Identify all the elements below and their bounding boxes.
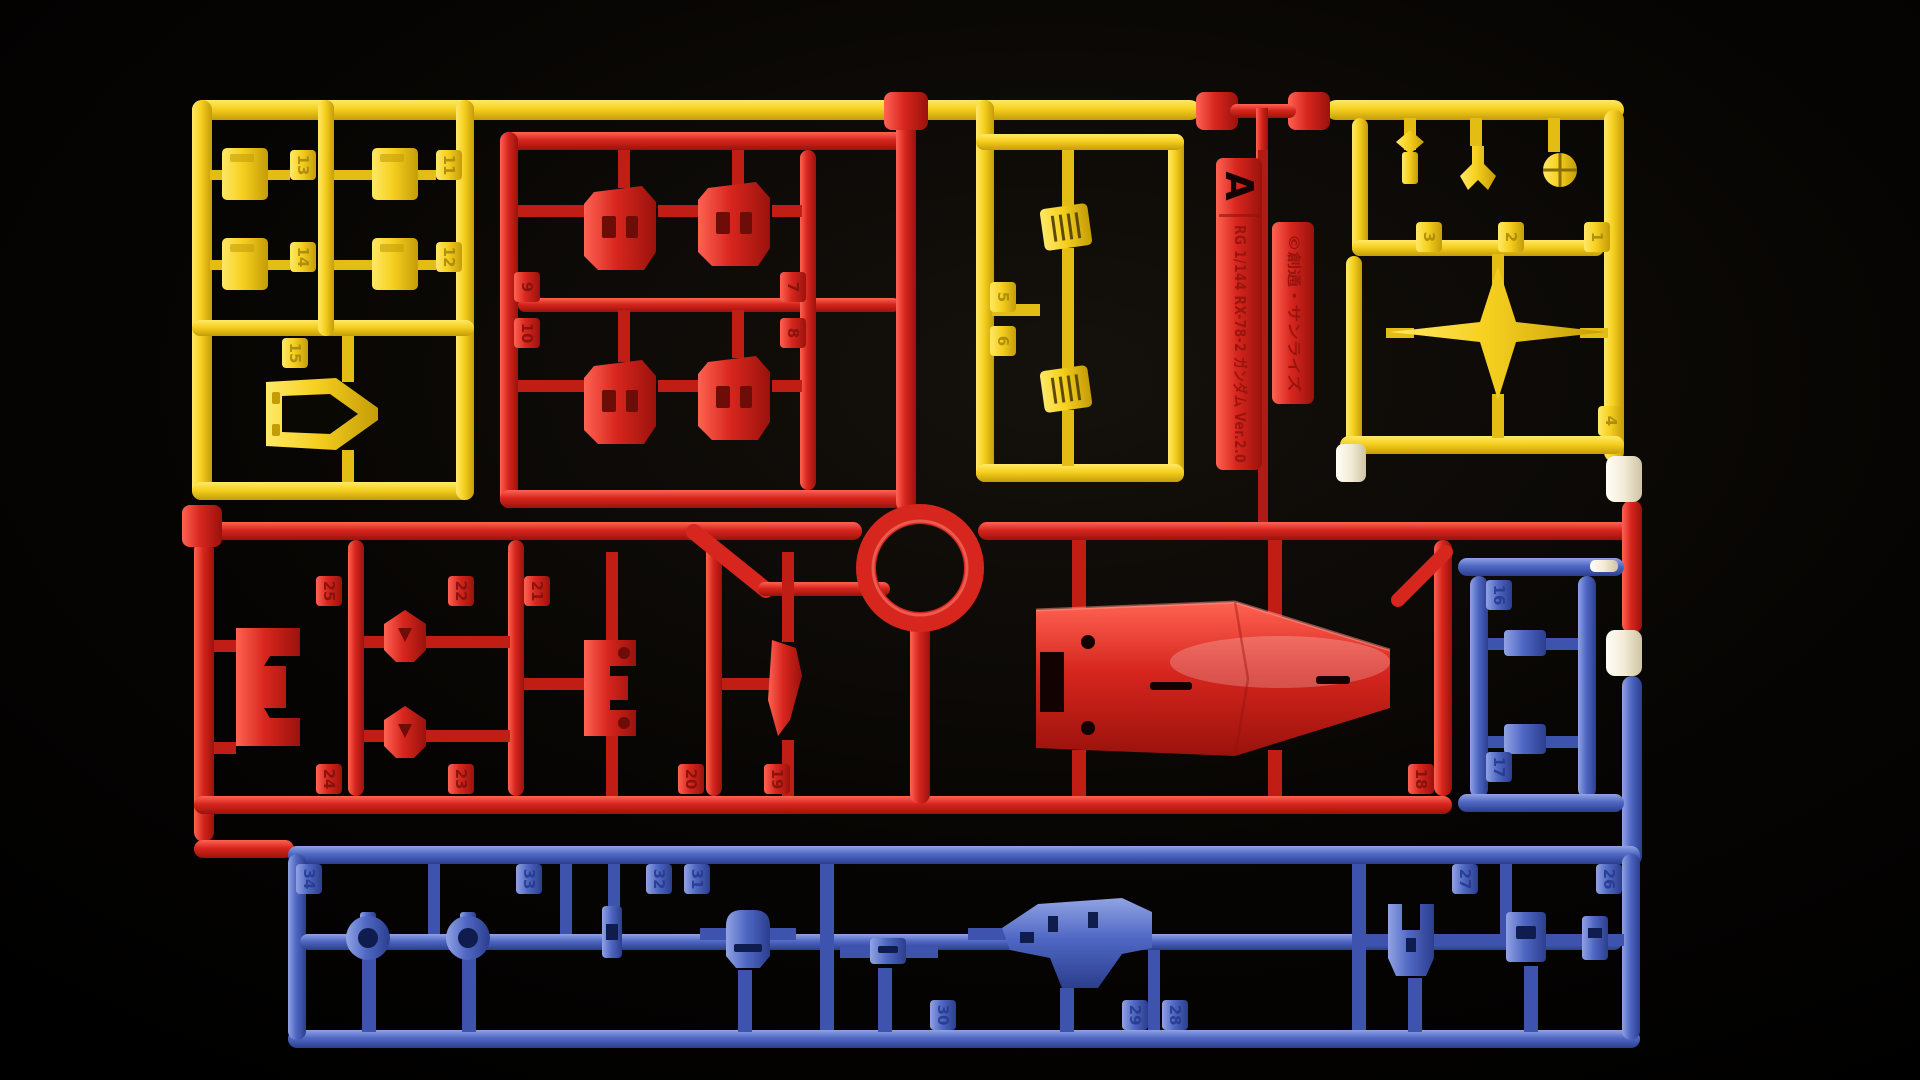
part-blue-box	[1506, 912, 1546, 962]
svg-text:5: 5	[994, 292, 1012, 302]
connector-cream-top-right	[1606, 456, 1642, 502]
part-number-tab: 34	[296, 864, 322, 894]
svg-text:1: 1	[1588, 232, 1606, 242]
svg-text:15: 15	[286, 343, 304, 364]
part-blue-bracket-small	[1504, 724, 1546, 754]
svg-text:12: 12	[440, 247, 458, 268]
part-number-tab: 17	[1486, 752, 1512, 782]
part-number-tab: 20	[678, 764, 704, 794]
svg-text:17: 17	[1490, 757, 1508, 778]
part-blue-small-box	[1582, 916, 1608, 960]
part-yellow-square	[222, 238, 268, 290]
part-number-tab: 3	[1416, 222, 1442, 252]
svg-text:8: 8	[784, 328, 802, 338]
part-number-tab: 2	[1498, 222, 1524, 252]
svg-text:9: 9	[518, 282, 536, 292]
part-yellow-camera	[1543, 153, 1577, 187]
part-number-tab: 13	[290, 150, 316, 180]
svg-text:20: 20	[682, 769, 700, 790]
part-number-tab: 10	[514, 318, 540, 348]
svg-text:16: 16	[1490, 585, 1508, 606]
svg-text:24: 24	[320, 769, 338, 790]
runner-letter: A	[1217, 171, 1261, 201]
part-yellow-square	[372, 148, 418, 200]
svg-text:22: 22	[452, 581, 470, 602]
part-red-foot	[584, 360, 656, 444]
part-number-tab: 18	[1408, 764, 1434, 794]
part-blue-thin	[602, 906, 622, 958]
connector-cream-mid-right	[1606, 630, 1642, 676]
copyright-text: ©創通・サンライズ	[1285, 234, 1302, 392]
part-number-tab: 6	[990, 326, 1016, 356]
part-yellow-square	[372, 238, 418, 290]
part-number-tab: 15	[282, 338, 308, 368]
svg-text:28: 28	[1166, 1005, 1184, 1026]
part-blue-chest-vent	[870, 938, 906, 964]
part-red-foot	[698, 356, 770, 440]
svg-text:31: 31	[688, 869, 706, 890]
part-blue-bracket-small	[1504, 630, 1546, 656]
part-red-foot	[698, 182, 770, 266]
svg-text:7: 7	[784, 282, 802, 292]
part-number-tab: 28	[1162, 1000, 1188, 1030]
part-number-tab: 14	[290, 242, 316, 272]
svg-text:26: 26	[1600, 869, 1618, 890]
svg-text:6: 6	[994, 336, 1012, 346]
part-number-tab: 22	[448, 576, 474, 606]
photo-gunpla-runner: A RG 1/144 RX-78-2 ガンダム Ver.2.0 ©創通・サンライ…	[0, 0, 1920, 1080]
part-number-tab: 24	[316, 764, 342, 794]
part-number-tab: 11	[436, 150, 462, 180]
connector-red-left	[182, 505, 222, 547]
svg-text:18: 18	[1412, 769, 1430, 790]
part-number-tab: 32	[646, 864, 672, 894]
svg-text:27: 27	[1456, 869, 1474, 890]
part-number-tab: 8	[780, 318, 806, 348]
svg-text:21: 21	[528, 581, 546, 602]
part-yellow-square	[222, 148, 268, 200]
svg-text:32: 32	[650, 869, 668, 890]
part-yellow-vent	[1039, 365, 1092, 413]
part-number-tab: 21	[524, 576, 550, 606]
part-number-tab: 31	[684, 864, 710, 894]
part-yellow-vent	[1039, 203, 1092, 251]
part-number-tab: 23	[448, 764, 474, 794]
svg-text:25: 25	[320, 581, 338, 602]
connector-cream-small	[1336, 444, 1366, 482]
part-red-foot	[584, 186, 656, 270]
svg-text:23: 23	[452, 769, 470, 790]
part-number-tab: 5	[990, 282, 1016, 312]
svg-text:19: 19	[768, 769, 786, 790]
part-number-tab: 27	[1452, 864, 1478, 894]
part-number-tab: 33	[516, 864, 542, 894]
part-number-tab: 1	[1584, 222, 1610, 252]
part-number-tab: 4	[1598, 406, 1624, 436]
svg-text:3: 3	[1420, 232, 1438, 242]
part-number-tab: 30	[930, 1000, 956, 1030]
part-number-tab: 29	[1122, 1000, 1148, 1030]
part-number-tab: 26	[1596, 864, 1622, 894]
part-number-tab: 7	[780, 272, 806, 302]
runner-tag-title: RG 1/144 RX-78-2 ガンダム Ver.2.0	[1231, 225, 1249, 463]
svg-text:2: 2	[1502, 232, 1520, 242]
svg-text:30: 30	[934, 1005, 952, 1026]
svg-text:11: 11	[440, 155, 458, 176]
svg-text:34: 34	[300, 869, 318, 890]
gate-cream-tip	[1590, 560, 1618, 572]
svg-text:29: 29	[1126, 1005, 1144, 1026]
svg-text:33: 33	[520, 869, 538, 890]
svg-text:14: 14	[294, 247, 312, 268]
part-number-tab: 19	[764, 764, 790, 794]
part-number-tab: 16	[1486, 580, 1512, 610]
svg-text:4: 4	[1602, 416, 1620, 426]
part-number-tab: 12	[436, 242, 462, 272]
part-number-tab: 9	[514, 272, 540, 302]
svg-text:10: 10	[518, 323, 536, 344]
svg-text:13: 13	[294, 155, 312, 176]
part-number-tab: 25	[316, 576, 342, 606]
part-blue-helmet	[726, 910, 770, 968]
